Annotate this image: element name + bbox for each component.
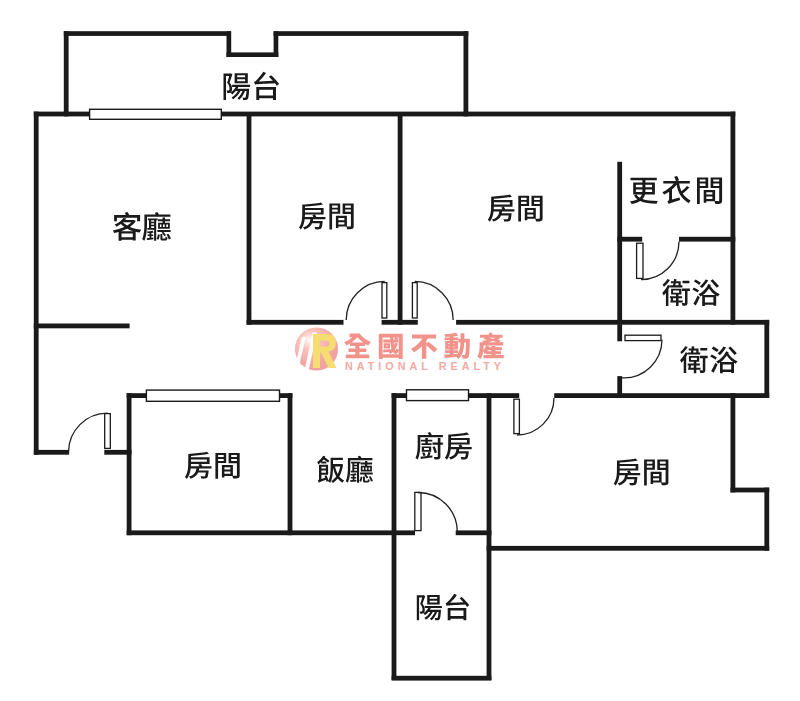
svg-text:NATIONAL REALTY: NATIONAL REALTY xyxy=(345,360,502,372)
